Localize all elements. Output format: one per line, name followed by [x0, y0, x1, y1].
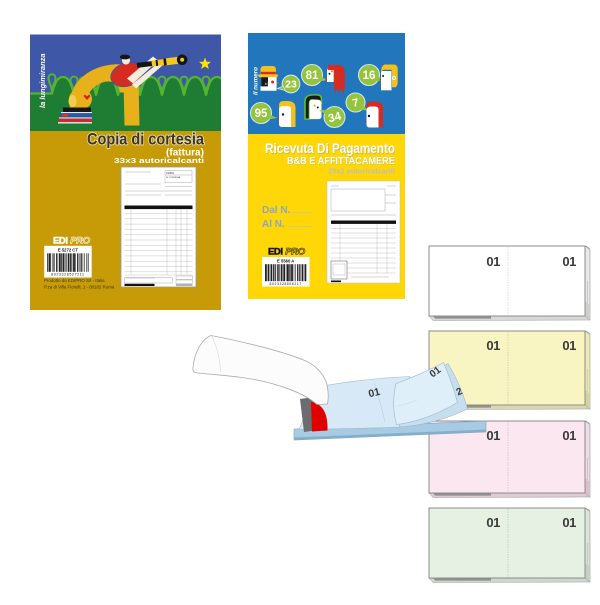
svg-text:E 5272 CT: E 5272 CT	[58, 248, 78, 253]
svg-text:95: 95	[255, 108, 268, 120]
svg-text:33x3 autoricalcanti: 33x3 autoricalcanti	[114, 156, 204, 165]
svg-text:COPIA: COPIA	[166, 171, 174, 175]
svg-text:16: 16	[363, 70, 376, 82]
svg-text:Prodotto da EDIPRO Srl - Itali: Prodotto da EDIPRO Srl - Italia	[44, 278, 105, 283]
svg-text:8023328527211: 8023328527211	[51, 272, 85, 276]
svg-text:P.za di Villa Fiorelli, 1 -: P.za di Villa Fiorelli, 1 - 00182 Roma	[44, 285, 115, 290]
svg-text:EDI: EDI	[268, 247, 283, 258]
svg-text:81: 81	[306, 70, 319, 82]
svg-text:Copia di cortesia: Copia di cortesia	[87, 130, 204, 149]
svg-text:01: 01	[562, 515, 576, 530]
svg-text:01: 01	[562, 254, 576, 269]
svg-text:23: 23	[285, 79, 297, 91]
svg-text:Ricevuta Di Pagamento: Ricevuta Di Pagamento	[265, 140, 395, 156]
svg-text:01: 01	[486, 338, 500, 353]
svg-text:8023328556217: 8023328556217	[270, 282, 302, 286]
svg-text:Dal N.: Dal N.	[262, 205, 291, 216]
svg-text:25x2 autoricalcanti: 25x2 autoricalcanti	[328, 167, 395, 176]
svg-text:01: 01	[486, 428, 500, 443]
svg-text:DI CORTESIA: DI CORTESIA	[166, 176, 180, 179]
svg-text:il numero: il numero	[253, 67, 260, 95]
svg-text:PRO: PRO	[70, 235, 90, 246]
svg-text:01: 01	[486, 515, 500, 530]
svg-text:Al N.: Al N.	[262, 219, 285, 230]
svg-text:B&B E AFFITTACAMERE: B&B E AFFITTACAMERE	[287, 155, 395, 167]
svg-text:PRO: PRO	[285, 247, 305, 258]
svg-text:01: 01	[562, 428, 576, 443]
svg-text:01: 01	[486, 254, 500, 269]
svg-text:E 5560 A: E 5560 A	[277, 259, 294, 264]
svg-text:EDI: EDI	[53, 235, 68, 246]
svg-text:la lungimiranza: la lungimiranza	[38, 53, 47, 108]
svg-text:01: 01	[562, 338, 576, 353]
